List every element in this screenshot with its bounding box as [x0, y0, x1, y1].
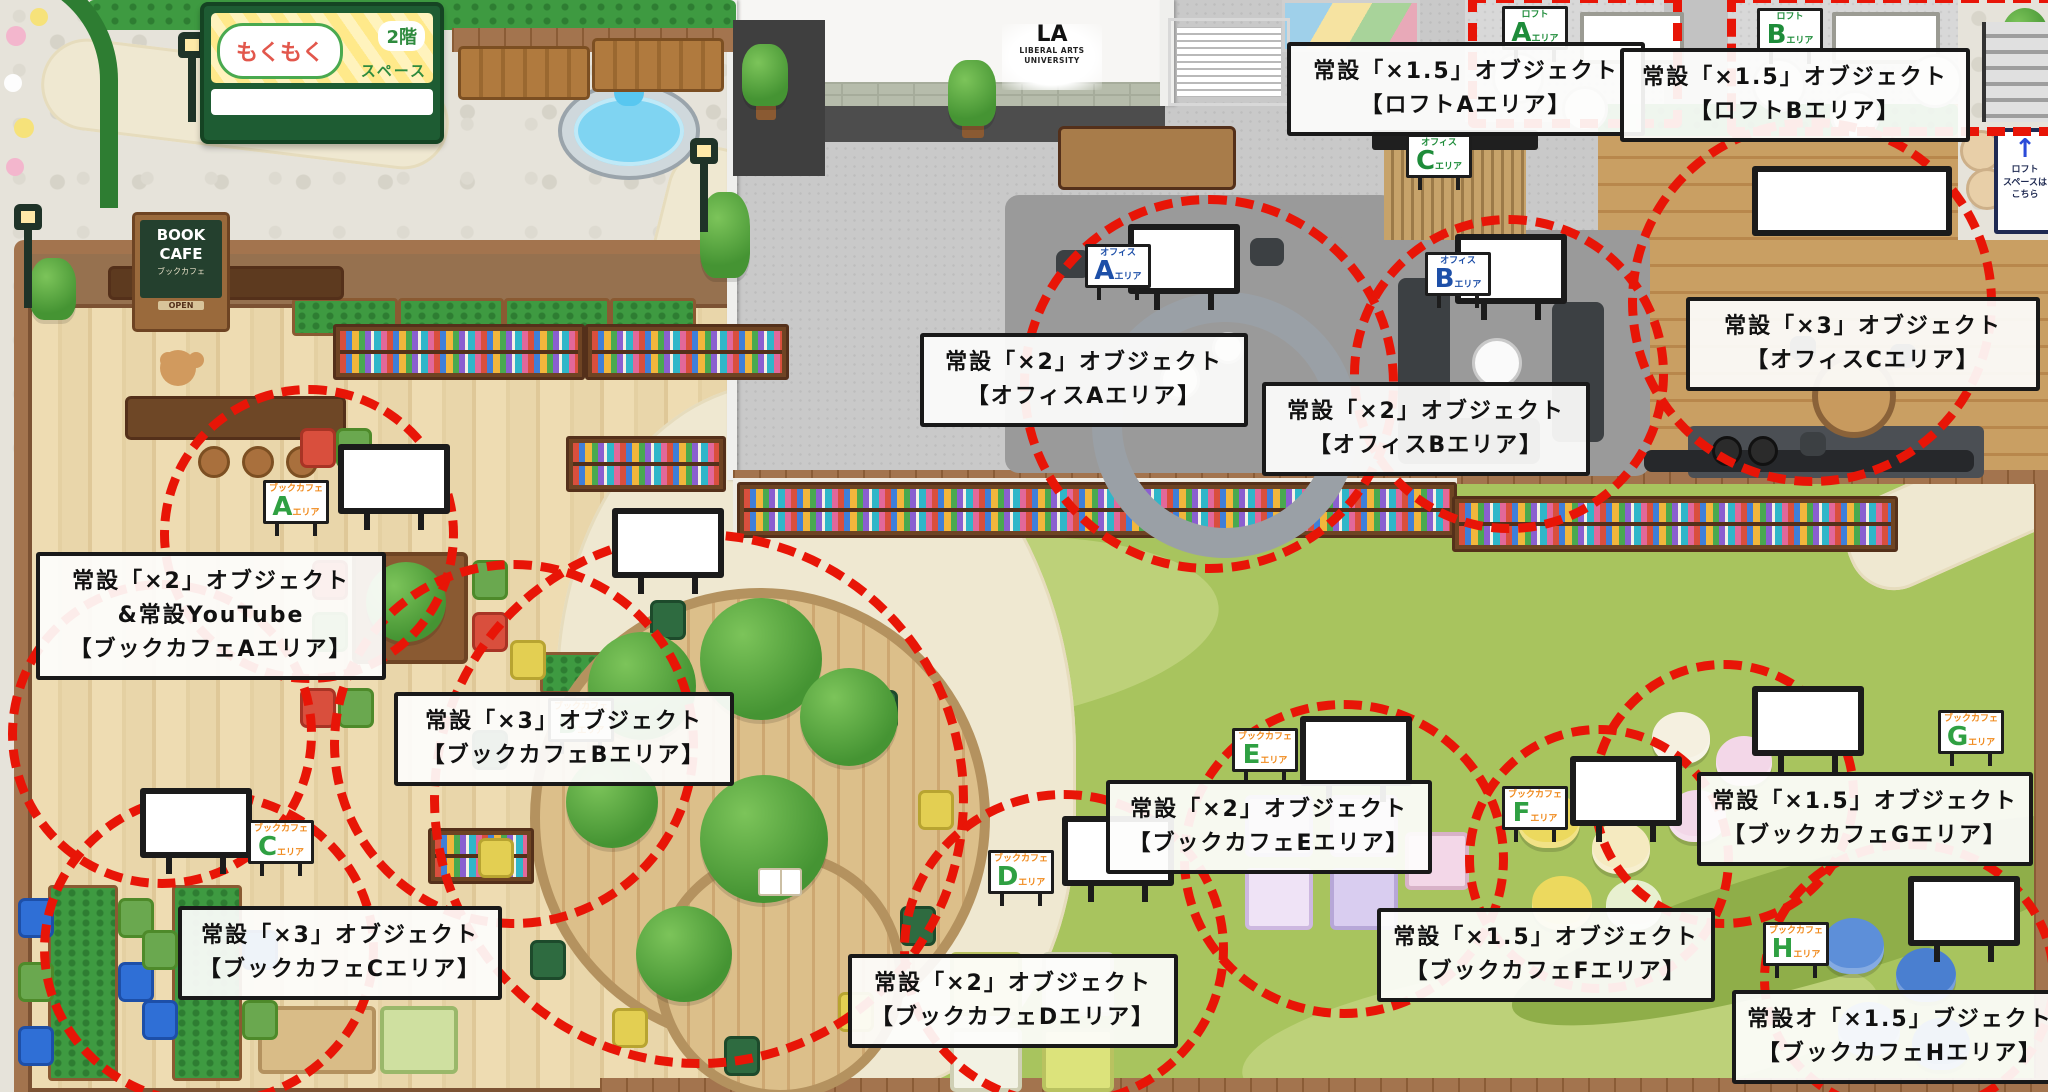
up-arrow-icon: ↑: [1998, 138, 2048, 161]
annotation-cafe-d: 常設「×2」オブジェクト 【ブックカフェDエリア】: [848, 954, 1178, 1048]
sign-letter: A: [272, 492, 292, 522]
lamp-head: [16, 206, 40, 228]
magazine-rack: [566, 436, 726, 492]
area-sign-cafe-a: ブックカフェAエリア: [263, 480, 329, 536]
annotation-line: 【ブックカフェAエリア】: [50, 633, 372, 667]
annotation-line: 常設「×2」オブジェクト: [1276, 395, 1576, 429]
book-row: [592, 354, 782, 373]
sign-suffix: エリア: [1018, 878, 1045, 888]
screen: [1908, 876, 2020, 946]
sign-letter: E: [1243, 740, 1261, 770]
area-sign-cafe-c: ブックカフェCエリア: [248, 820, 314, 876]
sign-board: オフィスCエリア: [1406, 134, 1472, 178]
screen: [1752, 166, 1952, 236]
sign-board: ブックカフェEエリア: [1232, 728, 1298, 772]
screen: [1570, 756, 1682, 826]
book-cafe-open-badge: OPEN: [158, 301, 204, 310]
annotation-line: 常設「×3」オブジェクト: [1700, 310, 2026, 344]
screen: [1300, 716, 1412, 786]
annotation-line: 【ロフトAエリア】: [1301, 89, 1631, 123]
chair: [18, 1026, 54, 1066]
annotation-line: 常設「×3」オブジェクト: [408, 705, 720, 739]
sign-suffix: エリア: [1530, 814, 1557, 824]
annotation-line: 常設「×1.5」オブジェクト: [1634, 61, 1956, 95]
tv-legs: [1752, 756, 1864, 772]
area-sign-cafe-f: ブックカフェFエリア: [1502, 786, 1568, 842]
sign-board: ブックカフェHエリア: [1763, 922, 1829, 966]
sign-letter: C: [258, 832, 277, 862]
sign-letter: B: [1767, 20, 1787, 50]
university-monogram: LA: [1002, 24, 1102, 46]
sign-legs: [988, 894, 1054, 906]
screen: [1752, 686, 1864, 756]
sign-suffix: エリア: [1786, 36, 1813, 46]
reception-counter: [1058, 126, 1236, 190]
mokumoku-space-sign: もくもく 2階 スペース: [200, 2, 444, 144]
sign-letter: H: [1772, 934, 1794, 964]
annotation-line: 常設「×2」オブジェクト: [50, 565, 372, 599]
screen: [338, 444, 450, 514]
sign-letter: C: [1416, 146, 1435, 176]
annotation-loft-b: 常設「×1.5」オブジェクト 【ロフトBエリア】: [1620, 48, 1970, 142]
sign-suffix: エリア: [1115, 272, 1142, 282]
barista-bear: [160, 350, 196, 386]
arch-flower: [30, 8, 48, 26]
mokumoku-floor-badge: 2階: [378, 21, 425, 51]
mokumoku-title: もくもく: [217, 23, 343, 79]
sign-legs: [1085, 288, 1151, 300]
arch-flower: [6, 158, 24, 176]
entrance-plant: [742, 44, 788, 106]
loft-direction-text: ロフト スペースは こちら: [1998, 164, 2048, 200]
sign-legs: [1425, 296, 1491, 308]
sign-legs: [1502, 830, 1568, 842]
annotation-line: 【ブックカフェEエリア】: [1120, 827, 1418, 861]
annotation-office-c: 常設「×3」オブジェクト 【オフィスCエリア】: [1686, 297, 2040, 391]
book-cafe-sign-line2: CAFE: [159, 245, 202, 263]
university-name-line2: UNIVERSITY: [1024, 56, 1080, 65]
annotation-cafe-f: 常設「×1.5」オブジェクト 【ブックカフェFエリア】: [1377, 908, 1715, 1002]
university-name-line1: LIBERAL ARTS: [1019, 46, 1084, 55]
book-row: [573, 466, 719, 485]
sign-suffix: エリア: [293, 508, 320, 518]
annotation-line: 常設「×2」オブジェクト: [934, 346, 1234, 380]
annotation-cafe-e: 常設「×2」オブジェクト 【ブックカフェEエリア】: [1106, 780, 1432, 874]
mokumoku-whiteboard: [211, 89, 433, 115]
lamp-head: [692, 140, 716, 162]
street-lamp: [24, 228, 32, 308]
deck-large-screen: [1752, 166, 1952, 236]
sign-legs: [248, 864, 314, 876]
area-sign-office-c: オフィスCエリア: [1406, 134, 1472, 190]
sign-board: ブックカフェCエリア: [248, 820, 314, 864]
sign-suffix: エリア: [1260, 756, 1287, 766]
sign-letter: A: [1094, 256, 1114, 286]
sign-letter: D: [997, 862, 1019, 892]
annotation-line: &常設YouTube: [50, 599, 372, 633]
sign-board: ブックカフェAエリア: [263, 480, 329, 524]
annotation-line: 【ブックカフェFエリア】: [1391, 955, 1701, 989]
sign-suffix: エリア: [1793, 950, 1820, 960]
fountain-water: [574, 96, 684, 166]
sign-legs: [263, 524, 329, 536]
sign-letter: F: [1513, 798, 1531, 828]
annotation-line: 常設「×1.5」オブジェクト: [1391, 921, 1701, 955]
annotation-line: 【オフィスBエリア】: [1276, 429, 1576, 463]
street-lamp: [700, 162, 708, 232]
display-board-cafe-f: [1570, 756, 1682, 842]
annotation-line: 【オフィスCエリア】: [1700, 344, 2026, 378]
tv-legs: [140, 858, 252, 874]
book-row: [592, 331, 782, 354]
sign-letter: G: [1947, 722, 1968, 752]
mokumoku-subtitle: スペース: [361, 60, 427, 81]
sign-board: ブックカフェDエリア: [988, 850, 1054, 894]
annotation-line: 【オフィスAエリア】: [934, 380, 1234, 414]
display-board-cafe-c: [140, 788, 252, 874]
arch-flower: [14, 118, 34, 138]
street-lamp: [188, 56, 196, 122]
loft-direction-sign: ↑ ロフト スペースは こちら: [1994, 128, 2048, 234]
annotation-line: 常設「×1.5」オブジェクト: [1711, 785, 2019, 819]
tv-legs: [1908, 946, 2020, 962]
annotation-line: 【ロフトBエリア】: [1634, 95, 1956, 129]
tv-legs: [338, 514, 450, 530]
tv-legs: [1570, 826, 1682, 842]
sign-legs: [1763, 966, 1829, 978]
book-cafe-sign-line1: BOOK: [157, 226, 206, 244]
arch-flower: [4, 74, 22, 92]
display-board-cafe-h: [1908, 876, 2020, 962]
bookshelf: [585, 324, 789, 380]
bookshelf: [333, 324, 585, 380]
book-row: [573, 443, 719, 466]
rules-notice-board: [1168, 18, 1290, 106]
book-row: [340, 331, 578, 354]
screen: [612, 508, 724, 578]
sign-legs: [1406, 178, 1472, 190]
book-cafe-stand-sign: BOOK CAFE ブックカフェ OPEN: [132, 212, 230, 332]
sign-suffix: エリア: [1435, 162, 1462, 172]
potted-plant: [30, 258, 76, 320]
area-sign-cafe-e: ブックカフェEエリア: [1232, 728, 1298, 784]
book-cafe-sign-board: BOOK CAFE ブックカフェ: [140, 220, 222, 298]
display-board-cafe-b: [612, 508, 724, 594]
book-row: [340, 354, 578, 373]
sign-suffix: エリア: [1454, 280, 1481, 290]
sign-suffix: エリア: [277, 848, 304, 858]
virtual-space-map: もくもく 2階 スペース BOOK CAFE ブックカフェ OPEN LA LI…: [0, 0, 2048, 1092]
sign-suffix: エリア: [1968, 738, 1995, 748]
annotation-line: 常設オ「×1.5」ブジェクト: [1746, 1003, 2048, 1037]
annotation-cafe-a: 常設「×2」オブジェクト &常設YouTube 【ブックカフェAエリア】: [36, 552, 386, 680]
annotation-line: 【ブックカフェBエリア】: [408, 739, 720, 773]
area-sign-office-a: オフィスAエリア: [1085, 244, 1151, 300]
bench: [458, 46, 590, 100]
annotation-line: 【ブックカフェCエリア】: [192, 953, 488, 987]
lobby-plant: [948, 60, 996, 126]
annotation-line: 常設「×2」オブジェクト: [1120, 793, 1418, 827]
area-sign-cafe-d: ブックカフェDエリア: [988, 850, 1054, 906]
annotation-loft-a: 常設「×1.5」オブジェクト 【ロフトAエリア】: [1287, 42, 1645, 136]
university-logo: LA LIBERAL ARTS UNIVERSITY: [1002, 24, 1102, 90]
mokumoku-sign-face: もくもく 2階 スペース: [211, 13, 433, 83]
dir-line2: スペースは: [2003, 178, 2047, 188]
sign-board: ロフトBエリア: [1757, 8, 1823, 52]
book-cafe-sign-line3: ブックカフェ: [140, 267, 222, 277]
tv-legs: [612, 578, 724, 594]
display-board-cafe-g: [1752, 686, 1864, 772]
area-sign-cafe-g: ブックカフェGエリア: [1938, 710, 2004, 766]
annotation-line: 常設「×3」オブジェクト: [192, 919, 488, 953]
arch-flower: [6, 26, 26, 46]
annotation-cafe-c: 常設「×3」オブジェクト 【ブックカフェCエリア】: [178, 906, 502, 1000]
cafe-c-table: [380, 1006, 458, 1074]
entrance-plant-pot: [756, 104, 776, 120]
annotation-office-a: 常設「×2」オブジェクト 【オフィスAエリア】: [920, 333, 1248, 427]
sign-board: オフィスAエリア: [1085, 244, 1151, 288]
annotation-cafe-g: 常設「×1.5」オブジェクト 【ブックカフェGエリア】: [1697, 772, 2033, 866]
annotation-cafe-b: 常設「×3」オブジェクト 【ブックカフェBエリア】: [394, 692, 734, 786]
sign-board: オフィスBエリア: [1425, 252, 1491, 296]
dir-line1: ロフト: [2011, 165, 2038, 175]
sign-legs: [1938, 754, 2004, 766]
display-board-cafe-a: [338, 444, 450, 530]
sign-board: ブックカフェFエリア: [1502, 786, 1568, 830]
dir-line3: こちら: [2011, 190, 2038, 200]
bench: [592, 38, 724, 92]
tv-legs: [1062, 886, 1174, 902]
annotation-line: 【ブックカフェDエリア】: [862, 1001, 1164, 1035]
annotation-cafe-h: 常設オ「×1.5」ブジェクト 【ブックカフェHエリア】: [1732, 990, 2048, 1084]
annotation-office-b: 常設「×2」オブジェクト 【オフィスBエリア】: [1262, 382, 1590, 476]
sign-board: ブックカフェGエリア: [1938, 710, 2004, 754]
sign-letter: B: [1435, 264, 1455, 294]
annotation-line: 常設「×1.5」オブジェクト: [1301, 55, 1631, 89]
area-sign-cafe-h: ブックカフェHエリア: [1763, 922, 1829, 978]
screen: [140, 788, 252, 858]
annotation-line: 【ブックカフェGエリア】: [1711, 819, 2019, 853]
area-sign-office-b: オフィスBエリア: [1425, 252, 1491, 308]
university-name: LIBERAL ARTS UNIVERSITY: [1002, 46, 1102, 66]
annotation-line: 常設「×2」オブジェクト: [862, 967, 1164, 1001]
annotation-line: 【ブックカフェHエリア】: [1746, 1037, 2048, 1071]
